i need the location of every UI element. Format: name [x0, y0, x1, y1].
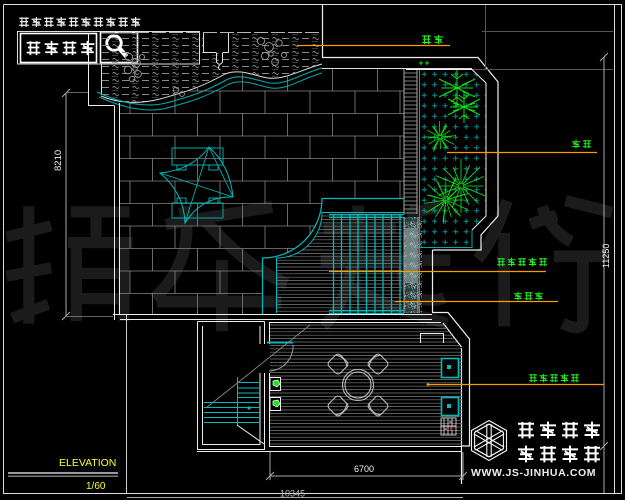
svg-text:8210: 8210	[53, 150, 64, 171]
svg-text:ELEVATION: ELEVATION	[59, 457, 116, 469]
svg-text:10345: 10345	[280, 489, 305, 499]
svg-text:1/60: 1/60	[86, 481, 106, 492]
svg-text:WWW.JS-JINHUA.COM: WWW.JS-JINHUA.COM	[471, 467, 596, 479]
svg-text:6700: 6700	[354, 464, 374, 474]
svg-text:11250: 11250	[601, 244, 611, 268]
